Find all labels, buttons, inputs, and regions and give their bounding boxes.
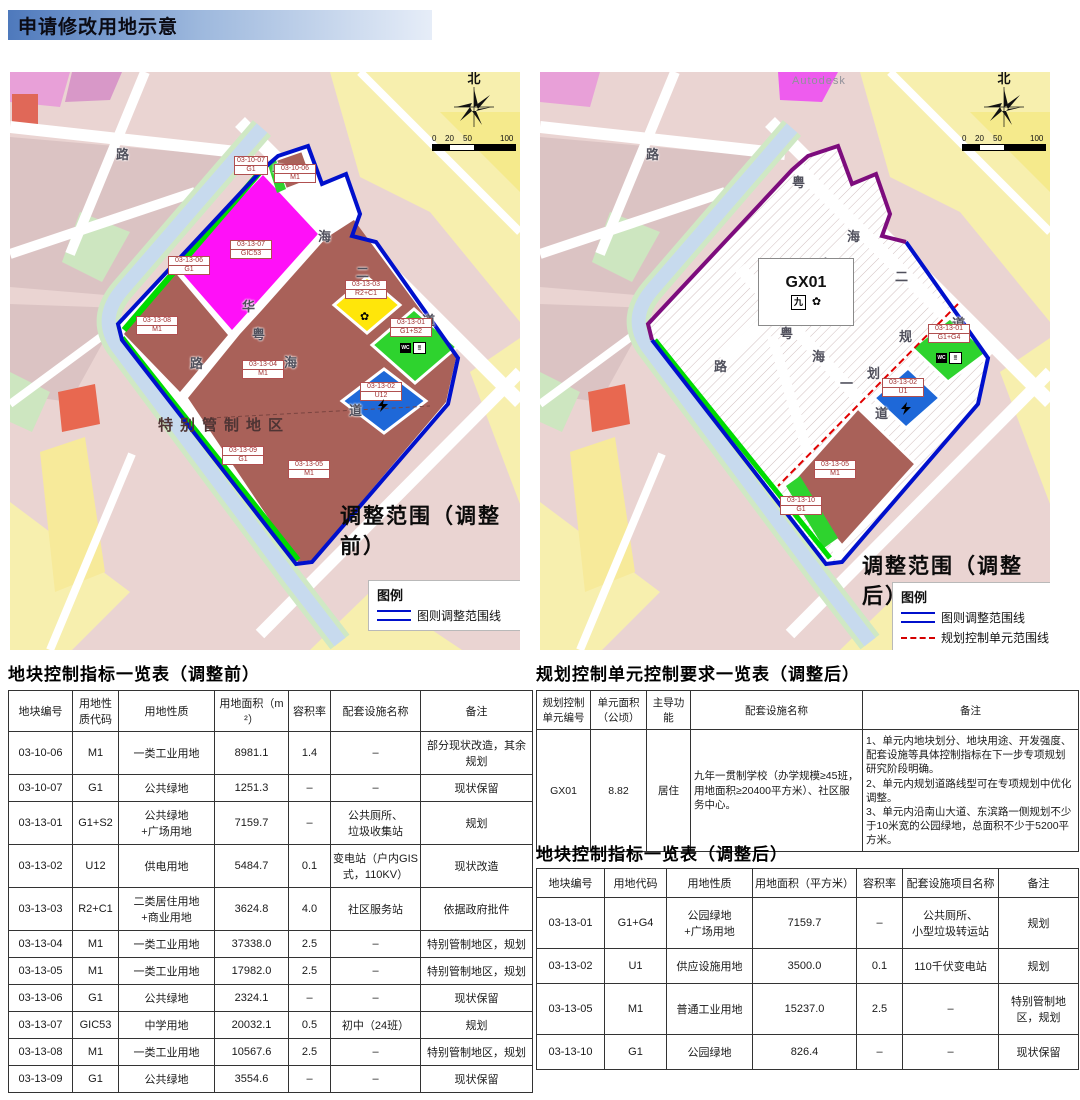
table-cell: 0.1 xyxy=(857,949,903,984)
road-label: 粤 xyxy=(252,328,265,341)
table-cell: 现状保留 xyxy=(421,985,533,1012)
table-cell: M1 xyxy=(73,732,119,775)
table-cell: – xyxy=(331,958,421,985)
table-cell: 03-13-01 xyxy=(537,898,605,949)
table-cell: 现状保留 xyxy=(999,1035,1079,1070)
lightning-icon xyxy=(901,402,911,415)
road-label: 海 xyxy=(847,230,860,243)
table-cell: 7159.7 xyxy=(215,802,289,845)
column-header: 地块编号 xyxy=(9,691,73,732)
boundary-line-icon xyxy=(377,610,411,621)
special-control-zone-label: 特别管制地区 xyxy=(158,414,290,435)
autodesk-watermark: Autodesk xyxy=(792,75,846,87)
table-cell: 10567.6 xyxy=(215,1039,289,1066)
table-before: 地块编号用地性质代码用地性质用地面积（m²）容积率配套设施名称备注03-10-0… xyxy=(8,690,533,1093)
table-cell: 1251.3 xyxy=(215,775,289,802)
table-cell: GX01 xyxy=(537,730,591,852)
table-cell: 一类工业用地 xyxy=(119,958,215,985)
scale-bar: 0 20 50 100 xyxy=(432,134,516,151)
road-label: 二 xyxy=(895,270,908,283)
table-cell: 0.5 xyxy=(289,1012,331,1039)
table-cell: 依据政府批件 xyxy=(421,888,533,931)
parcel-label: 03-13-06G1 xyxy=(168,256,210,275)
table-cell: – xyxy=(331,931,421,958)
table-cell: GIC53 xyxy=(73,1012,119,1039)
map-after: Autodesk 粤 海 南 二 道 华 粤 海 一 道 规 划 路 路 GX0… xyxy=(540,72,1050,650)
school-icon: 九 xyxy=(791,295,806,310)
table-cell: 供电用地 xyxy=(119,845,215,888)
column-header: 用地代码 xyxy=(605,869,667,898)
table-cell: 公共绿地 xyxy=(119,1066,215,1093)
table-cell: 1.4 xyxy=(289,732,331,775)
table-cell: 17982.0 xyxy=(215,958,289,985)
table-cell: 03-13-08 xyxy=(9,1039,73,1066)
parcel-label: 03-13-01G1+S2 xyxy=(390,318,432,337)
restroom-icon: WC xyxy=(400,343,411,353)
table-cell: – xyxy=(331,775,421,802)
table-cell: 03-13-05 xyxy=(537,984,605,1035)
lightning-icon xyxy=(378,399,388,412)
legend-before: 图例 图则调整范围线 xyxy=(368,580,520,631)
table-cell: 规划 xyxy=(999,898,1079,949)
table-cell: 03-13-06 xyxy=(9,985,73,1012)
north-arrow-block: 北 0 20 50 100 xyxy=(430,72,518,168)
table-row: 03-10-06M1一类工业用地8981.11.4–部分现状改造，其余规划 xyxy=(9,732,533,775)
table-cell: G1 xyxy=(605,1035,667,1070)
table-row: 03-10-07G1公共绿地1251.3––现状保留 xyxy=(9,775,533,802)
road-label: 道 xyxy=(349,404,362,417)
table-cell: 特别管制地区，规划 xyxy=(421,958,533,985)
legend-item-label: 图则调整范围线 xyxy=(941,609,1025,626)
map-before-caption: 调整范围（调整前） xyxy=(340,500,520,560)
parcel-label: 03-10-07G1 xyxy=(234,156,268,175)
scale-bar: 0 20 50 100 xyxy=(962,134,1046,151)
table-cell: U1 xyxy=(605,949,667,984)
road-label: 粤 xyxy=(780,327,793,340)
road-label: 路 xyxy=(714,360,727,373)
table-cell: 03-13-09 xyxy=(9,1066,73,1093)
table-row: 03-13-09G1公共绿地3554.6––现状保留 xyxy=(9,1066,533,1093)
column-header: 用地面积（平方米） xyxy=(753,869,857,898)
north-label: 北 xyxy=(430,72,518,85)
column-header: 容积率 xyxy=(857,869,903,898)
table-after-title: 地块控制指标一览表（调整后） xyxy=(536,840,788,865)
table-cell: 特别管制地区，规划 xyxy=(999,984,1079,1035)
parcel-label: 03-13-05M1 xyxy=(288,460,330,479)
north-label: 北 xyxy=(960,72,1048,85)
table-cell: 03-13-05 xyxy=(9,958,73,985)
column-header: 配套设施名称 xyxy=(331,691,421,732)
table-row: 03-13-04M1一类工业用地37338.02.5–特别管制地区，规划 xyxy=(9,931,533,958)
column-header: 备注 xyxy=(421,691,533,732)
road-label: 道 xyxy=(875,407,888,420)
column-header: 备注 xyxy=(863,691,1079,730)
table-cell: M1 xyxy=(73,958,119,985)
table-cell: 03-10-07 xyxy=(9,775,73,802)
table-row: 03-13-01G1+S2公共绿地 +广场用地7159.7–公共厕所、 垃圾收集… xyxy=(9,802,533,845)
parcel-label: 03-13-07GIC53 xyxy=(230,240,272,259)
road-label: 华 xyxy=(242,300,255,313)
table-unit: 规划控制单元编号单元面积（公顷）主导功能配套设施名称备注GX018.82居住九年… xyxy=(536,690,1079,852)
table-row: 03-13-02U1供应设施用地3500.00.1110千伏变电站规划 xyxy=(537,949,1079,984)
map-before: 粤 海 二 道 华 粤 海 道 路 路 03-10-07G1 03-10-06M… xyxy=(10,72,520,650)
table-cell: 九年一贯制学校（办学规模≥45班，用地面积≥20400平方米）、社区服务中心。 xyxy=(691,730,863,852)
table-cell: 规划 xyxy=(421,802,533,845)
table-row: 03-13-05M1普通工业用地15237.02.5–特别管制地区，规划 xyxy=(537,984,1079,1035)
table-cell: 03-13-04 xyxy=(9,931,73,958)
table-cell: 初中（24班） xyxy=(331,1012,421,1039)
table-cell: 3624.8 xyxy=(215,888,289,931)
table-cell: 8981.1 xyxy=(215,732,289,775)
table-cell: 110千伏变电站 xyxy=(903,949,999,984)
table-cell: 15237.0 xyxy=(753,984,857,1035)
table-cell: 03-13-07 xyxy=(9,1012,73,1039)
table-cell: 规划 xyxy=(999,949,1079,984)
table-cell: 公共绿地 xyxy=(119,985,215,1012)
table-cell: 20032.1 xyxy=(215,1012,289,1039)
table-cell: 2.5 xyxy=(289,931,331,958)
table-cell: 一类工业用地 xyxy=(119,931,215,958)
table-cell: 中学用地 xyxy=(119,1012,215,1039)
parcel-label: 03-13-09G1 xyxy=(222,446,264,465)
table-cell: 变电站（户内GIS式，110KV） xyxy=(331,845,421,888)
table-cell: – xyxy=(289,1066,331,1093)
table-cell: – xyxy=(331,732,421,775)
parcel-label: 03-13-08M1 xyxy=(136,316,178,335)
north-compass-icon xyxy=(452,85,496,129)
flower-icon: ✿ xyxy=(812,297,821,308)
table-cell: 826.4 xyxy=(753,1035,857,1070)
table-cell: 现状保留 xyxy=(421,775,533,802)
table-cell: 社区服务站 xyxy=(331,888,421,931)
facility-icons: WC ≣ xyxy=(936,352,962,364)
table-cell: 03-13-02 xyxy=(537,949,605,984)
boundary-line-icon xyxy=(901,612,935,623)
table-cell: 公共绿地 xyxy=(119,775,215,802)
header-row: 地块编号用地代码用地性质用地面积（平方米）容积率配套设施项目名称备注 xyxy=(537,869,1079,898)
legend-title: 图例 xyxy=(901,587,1050,606)
table-cell: G1 xyxy=(73,985,119,1012)
table-cell: 公园绿地 +广场用地 xyxy=(667,898,753,949)
column-header: 主导功能 xyxy=(647,691,691,730)
road-label: 规 xyxy=(899,330,912,343)
table-cell: 规划 xyxy=(421,1012,533,1039)
table-unit-title: 规划控制单元控制要求一览表（调整后） xyxy=(536,660,860,685)
table-cell: 1、单元内地块划分、地块用途、开发强度、配套设施等具体控制指标在下一步专项规划研… xyxy=(863,730,1079,852)
table-cell: – xyxy=(289,802,331,845)
table-cell: G1+S2 xyxy=(73,802,119,845)
table-cell: 4.0 xyxy=(289,888,331,931)
parcel-label: 03-13-05M1 xyxy=(814,460,856,479)
table-cell: 03-13-10 xyxy=(537,1035,605,1070)
table-cell: – xyxy=(903,984,999,1035)
table-cell: 03-13-01 xyxy=(9,802,73,845)
table-cell: 二类居住用地 +商业用地 xyxy=(119,888,215,931)
table-cell: M1 xyxy=(73,931,119,958)
trash-icon: ≣ xyxy=(413,342,426,354)
table-row: GX018.82居住九年一贯制学校（办学规模≥45班，用地面积≥20400平方米… xyxy=(537,730,1079,852)
table-cell: – xyxy=(857,1035,903,1070)
table-row: 03-13-08M1一类工业用地10567.62.5–特别管制地区，规划 xyxy=(9,1039,533,1066)
north-arrow-block: 北 0 20 50 100 xyxy=(960,72,1048,168)
facility-icons: WC ≣ xyxy=(400,342,426,354)
planning-document-page: 申请修改用地示意 xyxy=(0,0,1080,1100)
page-title: 申请修改用地示意 xyxy=(8,12,178,39)
page-title-bar: 申请修改用地示意 xyxy=(8,10,432,40)
column-header: 容积率 xyxy=(289,691,331,732)
column-header: 用地性质代码 xyxy=(73,691,119,732)
column-header: 用地性质 xyxy=(119,691,215,732)
column-header: 配套设施项目名称 xyxy=(903,869,999,898)
table-cell: 供应设施用地 xyxy=(667,949,753,984)
parcel-label: 03-13-01G1+G4 xyxy=(928,324,970,343)
table-cell: 部分现状改造，其余规划 xyxy=(421,732,533,775)
column-header: 用地面积（m²） xyxy=(215,691,289,732)
table-cell: 现状保留 xyxy=(421,1066,533,1093)
table-cell: 7159.7 xyxy=(753,898,857,949)
column-header: 用地性质 xyxy=(667,869,753,898)
table-row: 03-13-01G1+G4公园绿地 +广场用地7159.7–公共厕所、 小型垃圾… xyxy=(537,898,1079,949)
table-cell: 2.5 xyxy=(857,984,903,1035)
table-cell: M1 xyxy=(73,1039,119,1066)
table-cell: – xyxy=(857,898,903,949)
road-label: 路 xyxy=(116,148,129,161)
table-cell: 2324.1 xyxy=(215,985,289,1012)
north-compass-icon xyxy=(982,85,1026,129)
table-cell: 公共厕所、 垃圾收集站 xyxy=(331,802,421,845)
table-cell: 2.5 xyxy=(289,1039,331,1066)
flower-icon: ✿ xyxy=(360,312,369,323)
road-label: 路 xyxy=(190,357,203,370)
table-row: 03-13-07GIC53中学用地20032.10.5初中（24班）规划 xyxy=(9,1012,533,1039)
parcel-label: 03-13-03R2+C1 xyxy=(345,280,387,299)
table-row: 03-13-03R2+C1二类居住用地 +商业用地3624.84.0社区服务站依… xyxy=(9,888,533,931)
table-cell: 普通工业用地 xyxy=(667,984,753,1035)
legend-title: 图例 xyxy=(377,585,520,604)
parcel-label: 03-10-06M1 xyxy=(274,164,316,183)
header-row: 规划控制单元编号单元面积（公顷）主导功能配套设施名称备注 xyxy=(537,691,1079,730)
table-cell: 公园绿地 xyxy=(667,1035,753,1070)
road-label: 海 xyxy=(318,230,331,243)
table-after: 地块编号用地代码用地性质用地面积（平方米）容积率配套设施项目名称备注03-13-… xyxy=(536,868,1079,1070)
trash-icon: ≣ xyxy=(949,352,962,364)
header-row: 地块编号用地性质代码用地性质用地面积（m²）容积率配套设施名称备注 xyxy=(9,691,533,732)
table-cell: 现状改造 xyxy=(421,845,533,888)
legend-after: 图例 图则调整范围线 规划控制单元范围线 xyxy=(892,582,1050,650)
table-cell: – xyxy=(331,985,421,1012)
table-cell: U12 xyxy=(73,845,119,888)
table-cell: 居住 xyxy=(647,730,691,852)
table-cell: 0.1 xyxy=(289,845,331,888)
table-cell: 特别管制地区，规划 xyxy=(421,1039,533,1066)
table-cell: – xyxy=(331,1066,421,1093)
parcel-label: 03-13-04M1 xyxy=(242,360,284,379)
table-cell: 5484.7 xyxy=(215,845,289,888)
table-cell: R2+C1 xyxy=(73,888,119,931)
legend-item-label: 图则调整范围线 xyxy=(417,607,501,624)
table-cell: 8.82 xyxy=(591,730,647,852)
table-row: 03-13-05M1一类工业用地17982.02.5–特别管制地区，规划 xyxy=(9,958,533,985)
parcel-label: 03-13-10G1 xyxy=(780,496,822,515)
table-cell: – xyxy=(903,1035,999,1070)
restroom-icon: WC xyxy=(936,353,947,363)
table-before-title: 地块控制指标一览表（调整前） xyxy=(8,660,260,685)
table-row: 03-13-06G1公共绿地2324.1––现状保留 xyxy=(9,985,533,1012)
column-header: 地块编号 xyxy=(537,869,605,898)
table-cell: 03-13-02 xyxy=(9,845,73,888)
table-cell: G1 xyxy=(73,1066,119,1093)
table-row: 03-13-02U12供电用地5484.70.1变电站（户内GIS式，110KV… xyxy=(9,845,533,888)
table-cell: – xyxy=(289,985,331,1012)
table-cell: 公共厕所、 小型垃圾转运站 xyxy=(903,898,999,949)
table-cell: 公共绿地 +广场用地 xyxy=(119,802,215,845)
column-header: 规划控制单元编号 xyxy=(537,691,591,730)
column-header: 备注 xyxy=(999,869,1079,898)
road-label: 路 xyxy=(646,148,659,161)
road-label: 二 xyxy=(356,266,369,279)
table-cell: G1 xyxy=(73,775,119,802)
column-header: 单元面积（公顷） xyxy=(591,691,647,730)
table-cell: 3554.6 xyxy=(215,1066,289,1093)
road-label: 一 xyxy=(840,377,853,390)
road-label: 粤 xyxy=(792,176,805,189)
table-cell: M1 xyxy=(605,984,667,1035)
table-cell: – xyxy=(289,775,331,802)
parcel-label: 03-13-02U1 xyxy=(882,378,924,397)
unit-gx01-box: GX01 九 ✿ xyxy=(758,258,854,326)
road-label: 海 xyxy=(812,350,825,363)
road-label: 划 xyxy=(867,367,880,380)
table-cell: 03-13-03 xyxy=(9,888,73,931)
table-row: 03-13-10G1公园绿地826.4––现状保留 xyxy=(537,1035,1079,1070)
column-header: 配套设施名称 xyxy=(691,691,863,730)
table-cell: 03-10-06 xyxy=(9,732,73,775)
table-cell: G1+G4 xyxy=(605,898,667,949)
table-cell: 2.5 xyxy=(289,958,331,985)
table-cell: – xyxy=(331,1039,421,1066)
table-cell: 一类工业用地 xyxy=(119,732,215,775)
table-cell: 3500.0 xyxy=(753,949,857,984)
unit-line-icon xyxy=(901,637,935,639)
legend-item-label: 规划控制单元范围线 xyxy=(941,629,1049,646)
road-label: 海 xyxy=(284,356,297,369)
table-cell: 一类工业用地 xyxy=(119,1039,215,1066)
unit-id: GX01 xyxy=(786,274,827,292)
table-cell: 37338.0 xyxy=(215,931,289,958)
table-cell: 特别管制地区，规划 xyxy=(421,931,533,958)
